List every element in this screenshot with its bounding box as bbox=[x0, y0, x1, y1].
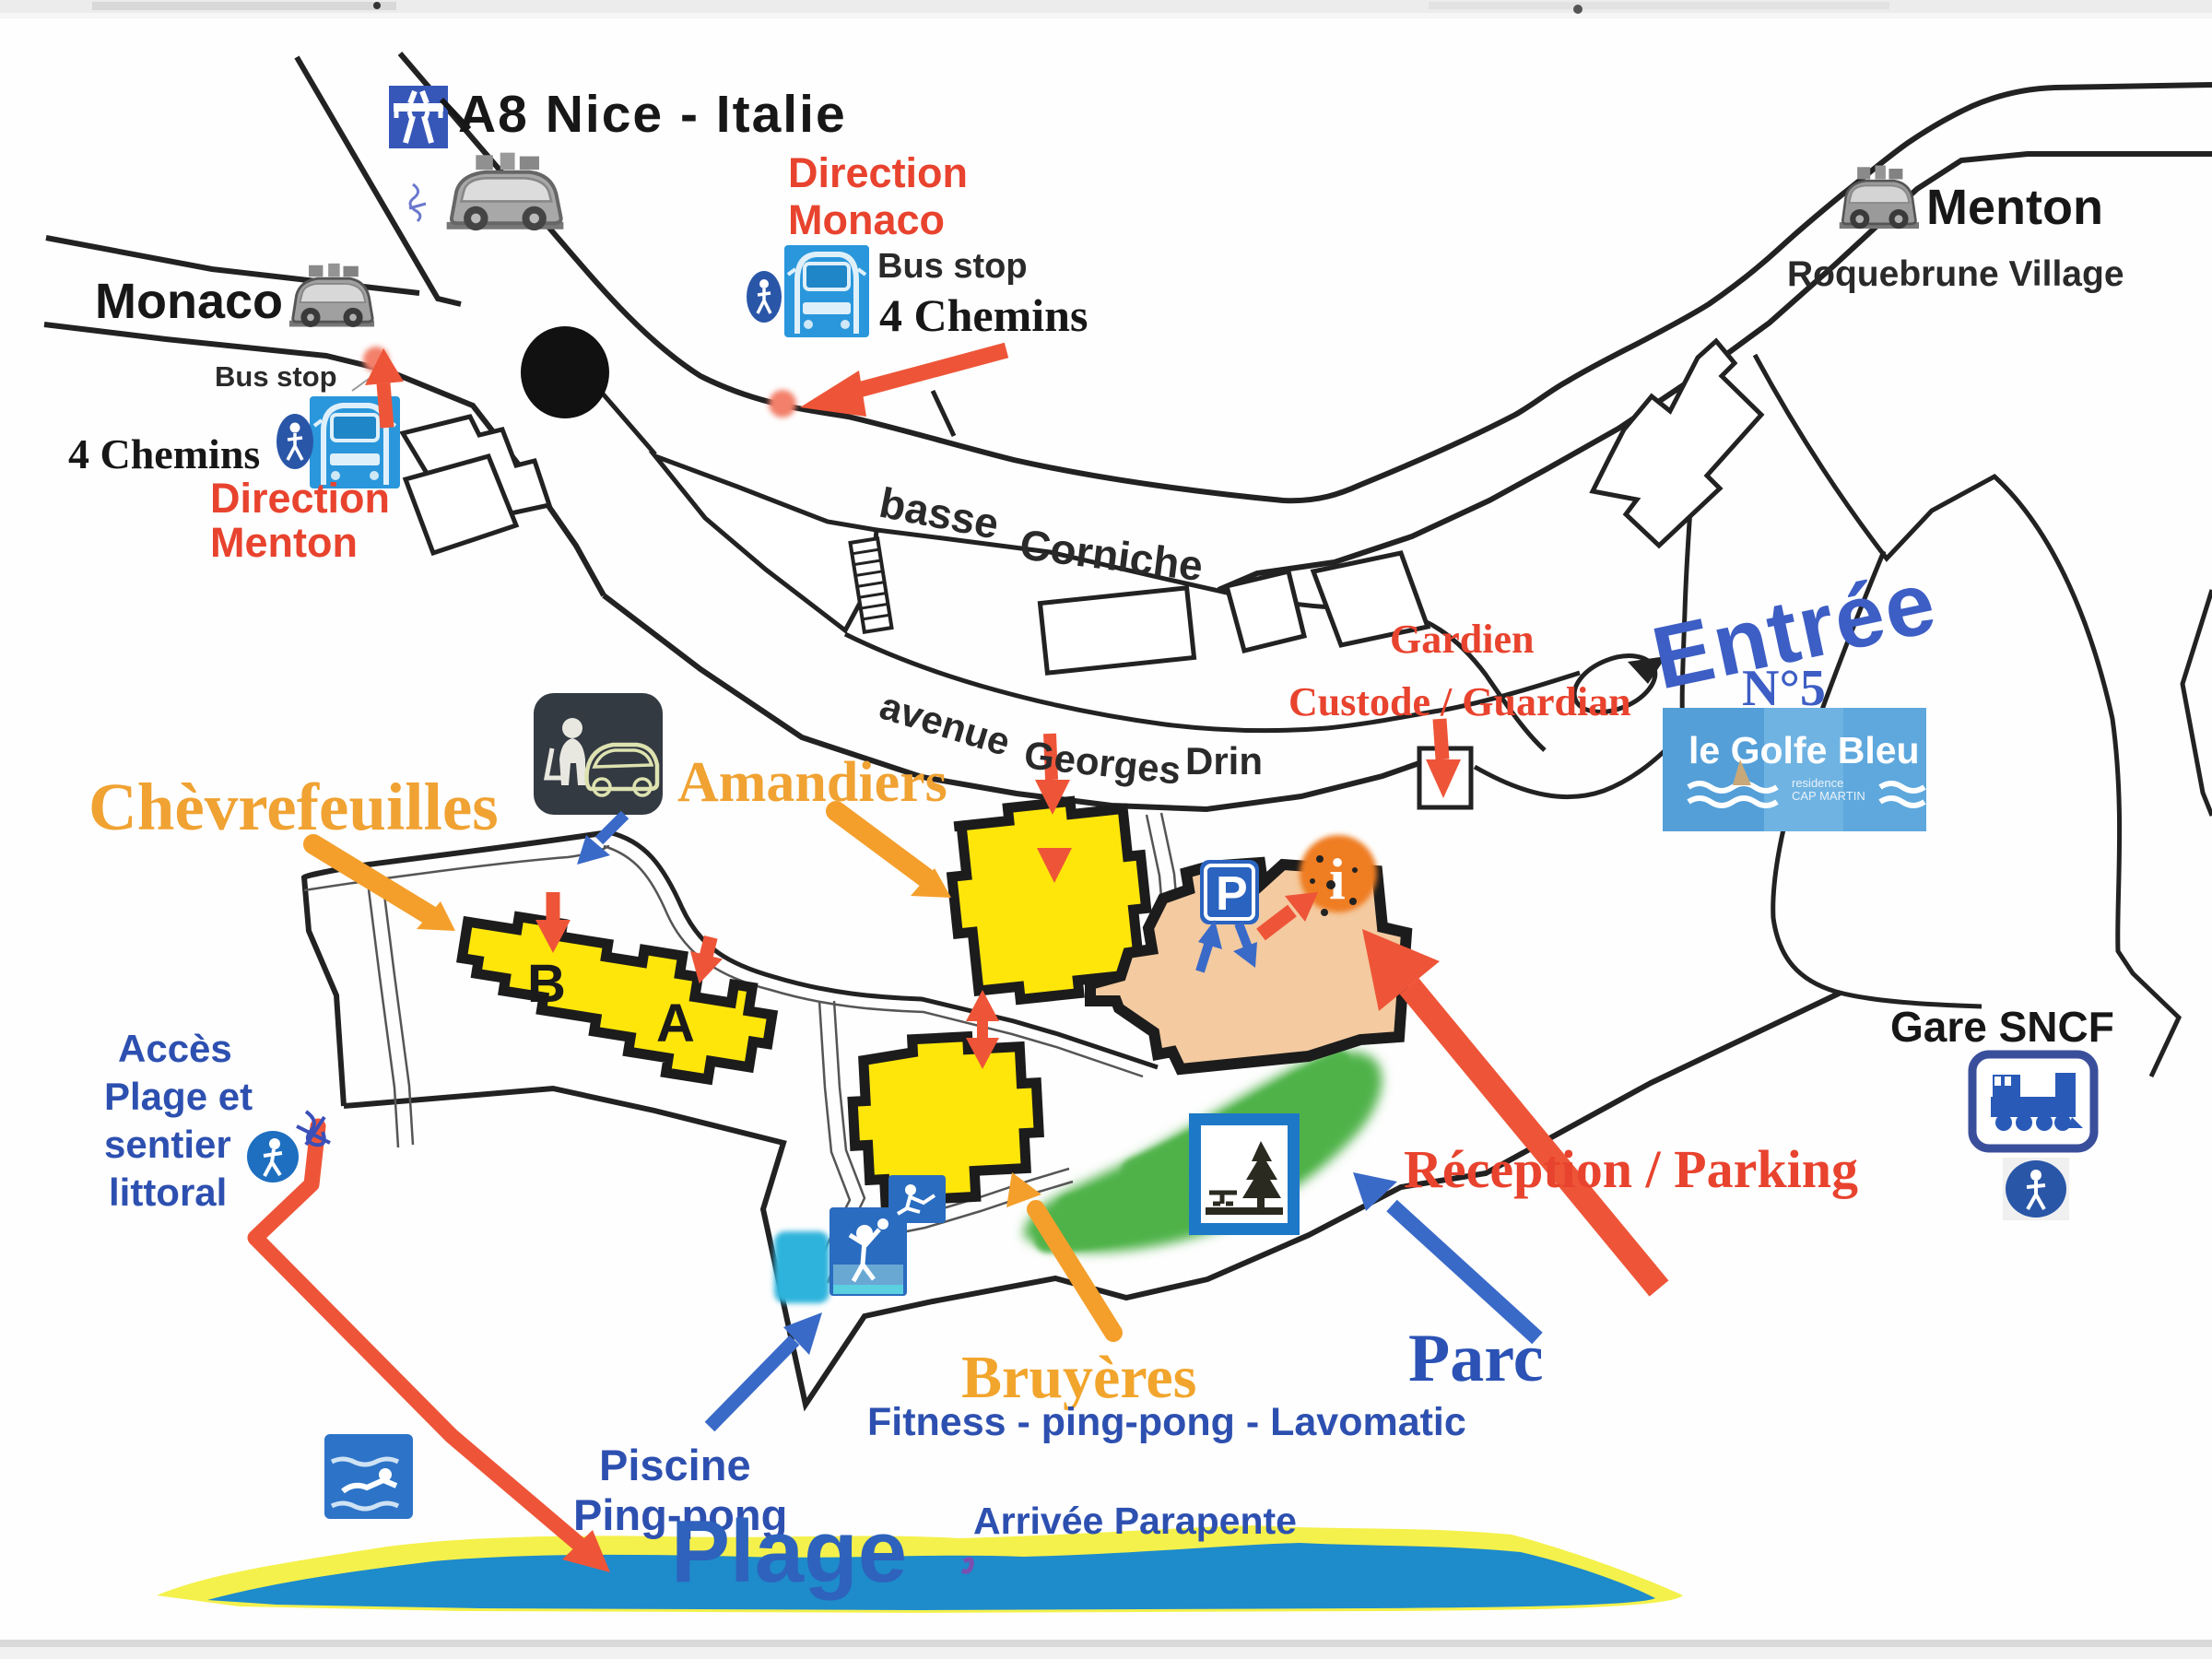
svg-text:Monaco: Monaco bbox=[788, 196, 945, 243]
svg-text:sentier: sentier bbox=[104, 1123, 231, 1166]
svg-text:Arrivée Parapente: Arrivée Parapente bbox=[973, 1500, 1297, 1542]
svg-text:CAP MARTIN: CAP MARTIN bbox=[1792, 789, 1865, 803]
svg-text:Drin: Drin bbox=[1185, 739, 1263, 782]
svg-text:Plage et: Plage et bbox=[104, 1075, 253, 1118]
svg-text:4 Chemins: 4 Chemins bbox=[879, 289, 1088, 341]
svg-text:Piscine: Piscine bbox=[599, 1441, 751, 1489]
svg-text:4 Chemins: 4 Chemins bbox=[68, 430, 260, 477]
svg-text:Monaco: Monaco bbox=[95, 274, 283, 329]
svg-text:Menton: Menton bbox=[1926, 180, 2103, 235]
svg-text:Direction: Direction bbox=[788, 149, 968, 196]
svg-text:Accès: Accès bbox=[118, 1027, 232, 1070]
svg-text:i: i bbox=[1329, 846, 1346, 912]
svg-text:Bus stop: Bus stop bbox=[877, 247, 1028, 286]
svg-text:P: P bbox=[1216, 867, 1248, 921]
svg-text:Amandiers: Amandiers bbox=[677, 751, 947, 814]
svg-text:littoral: littoral bbox=[109, 1171, 227, 1214]
svg-text:Bus stop: Bus stop bbox=[215, 360, 337, 393]
svg-text:Menton: Menton bbox=[210, 519, 358, 566]
svg-text:Gardien: Gardien bbox=[1390, 617, 1534, 662]
svg-text:le Golfe Bleu: le Golfe Bleu bbox=[1688, 729, 1920, 771]
svg-text:Custode / Guardian: Custode / Guardian bbox=[1288, 679, 1631, 724]
svg-text:Fitness - ping-pong - Lavo: Fitness - ping-pong - Lavomatic bbox=[867, 1400, 1466, 1444]
svg-text:Plage: Plage bbox=[671, 1502, 907, 1601]
svg-text:B: B bbox=[527, 954, 566, 1014]
svg-text:Roquebrune Village: Roquebrune Village bbox=[1787, 254, 2124, 294]
svg-text:A: A bbox=[656, 994, 695, 1053]
svg-text:Réception / Parking: Réception / Parking bbox=[1404, 1139, 1858, 1199]
svg-text:residence: residence bbox=[1792, 776, 1843, 790]
svg-text:Gare SNCF: Gare SNCF bbox=[1890, 1003, 2114, 1051]
svg-text:N°5: N°5 bbox=[1742, 660, 1826, 717]
svg-text:Direction: Direction bbox=[210, 475, 390, 522]
svg-text:Parc: Parc bbox=[1408, 1321, 1544, 1396]
svg-text:A8 Nice - Italie: A8 Nice - Italie bbox=[458, 85, 847, 144]
svg-text:Chèvrefeuilles: Chèvrefeuilles bbox=[88, 770, 499, 844]
